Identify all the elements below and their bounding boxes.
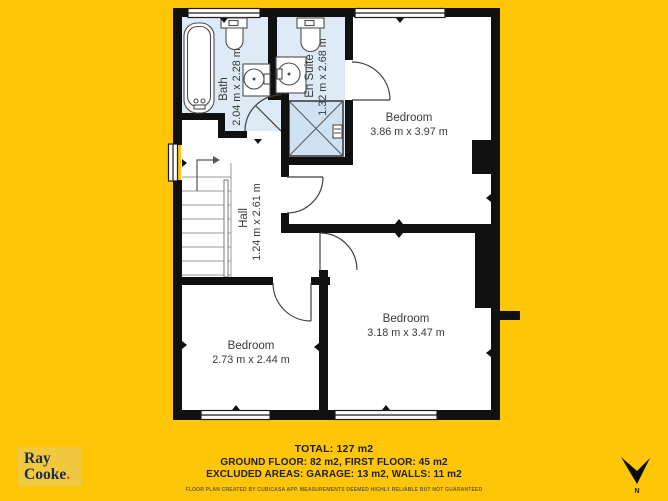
room-label-bedroom-bottom-right: Bedroom [383, 313, 430, 325]
room-label-bedroom-bottom-left: Bedroom [228, 340, 275, 352]
shower-mixer-icon [333, 125, 342, 138]
footer-disclaimer: FLOOR PLAN CREATED BY CUBICASA APP. MEAS… [186, 487, 483, 493]
room-dims-bath: 2.04 m x 2.28 m [231, 48, 243, 125]
room-dims-hall: 1.24 m x 2.61 m [251, 183, 263, 260]
stair-handrail [224, 180, 228, 277]
exterior-wall-stub [498, 311, 520, 320]
chimney-breast-top [472, 140, 492, 174]
floor-plan-page: Bath 2.04 m x 2.28 m En Suite 1.32 m x 2… [0, 0, 668, 501]
footer-total: TOTAL: 127 m2 [295, 443, 374, 455]
north-label: N [634, 488, 639, 495]
room-dims-bedroom-top: 3.86 m x 3.97 m [370, 126, 447, 138]
floor-plan-canvas: Bath 2.04 m x 2.28 m En Suite 1.32 m x 2… [0, 0, 668, 501]
room-label-bedroom-top: Bedroom [386, 112, 433, 124]
room-dims-bedroom-bottom-right: 3.18 m x 3.47 m [367, 327, 444, 339]
footer-excluded: EXCLUDED AREAS: GARAGE: 13 m2, WALLS: 11… [206, 469, 462, 480]
room-dims-bedroom-bottom-left: 2.73 m x 2.44 m [212, 354, 289, 366]
logo-dot: . [66, 466, 70, 483]
logo-line1: Ray [24, 450, 51, 467]
room-dims-ensuite: 1.32 m x 2.68 m [317, 38, 329, 115]
room-label-hall: Hall [238, 208, 250, 228]
shower [289, 101, 343, 156]
footer-floors: GROUND FLOOR: 82 m2, FIRST FLOOR: 45 m2 [220, 457, 448, 468]
room-label-ensuite: En Suite [304, 54, 316, 97]
room-label-bath: Bath [218, 77, 230, 101]
chimney-breast-bottom [475, 224, 492, 308]
ray-cooke-logo: Ray Cooke. [18, 447, 81, 486]
logo-line2: Cooke. [24, 466, 70, 483]
